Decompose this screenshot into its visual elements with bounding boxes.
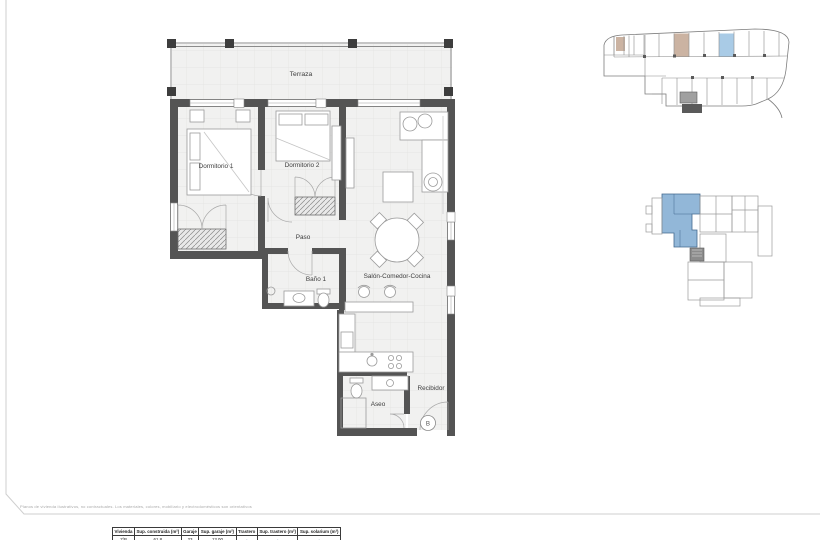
label-bano1: Baño 1 — [306, 276, 327, 283]
label-recibidor: Recibidor — [418, 385, 446, 392]
cell-vivienda: 1ºB — [113, 536, 135, 540]
col-vivienda: Vivienda — [113, 528, 135, 536]
cell-sup-solarium: - — [298, 536, 341, 540]
cell-sup-trastero: - — [257, 536, 298, 540]
garage-key-plan — [604, 29, 789, 118]
col-sup-garaje: Sup. garaje (m²) — [199, 528, 236, 536]
surface-table: Vivienda Sup. construida (m²) Garaje Sup… — [112, 527, 341, 540]
floor-key-plan — [646, 194, 772, 306]
entrance-door-badge: B — [421, 416, 436, 431]
floor-plan: B Terraza Dormitorio 1 Dormitorio 2 Paso… — [167, 39, 455, 436]
col-sup-solarium: Sup. solarium (m²) — [298, 528, 341, 536]
cell-sup-garaje: 13.00 — [199, 536, 236, 540]
label-dormitorio1: Dormitorio 1 — [199, 163, 234, 170]
label-salon: Salón-Comedor-Cocina — [364, 273, 431, 280]
col-sup-construida: Sup. construida (m²) — [134, 528, 181, 536]
col-garaje: Garaje — [181, 528, 199, 536]
label-aseo: Aseo — [371, 401, 386, 408]
cell-sup-construida: 61.8 — [134, 536, 181, 540]
label-terraza: Terraza — [290, 71, 313, 78]
surface-table-header-row: Vivienda Sup. construida (m²) Garaje Sup… — [113, 528, 341, 536]
col-sup-trastero: Sup. trastero (m²) — [257, 528, 298, 536]
garage-stall-blue — [719, 34, 734, 58]
disclaimer-text: Planos de vivienda ilustrativos, no cont… — [20, 504, 252, 509]
label-paso: Paso — [296, 234, 311, 241]
plan-drawing: B Terraza Dormitorio 1 Dormitorio 2 Paso… — [0, 0, 825, 540]
garage-stall-tan — [674, 34, 689, 58]
plan-sheet: B Terraza Dormitorio 1 Dormitorio 2 Paso… — [0, 0, 825, 540]
entrance-door-letter: B — [426, 421, 430, 428]
label-dormitorio2: Dormitorio 2 — [285, 162, 320, 169]
keyplan-unit-highlight — [662, 194, 700, 247]
col-trastero: Trastero — [236, 528, 257, 536]
surface-table-data-row: 1ºB 61.8 23 13.00 - - - — [113, 536, 341, 540]
garage-store-tan — [616, 37, 625, 51]
cell-trastero: - — [236, 536, 257, 540]
cell-garaje: 23 — [181, 536, 199, 540]
